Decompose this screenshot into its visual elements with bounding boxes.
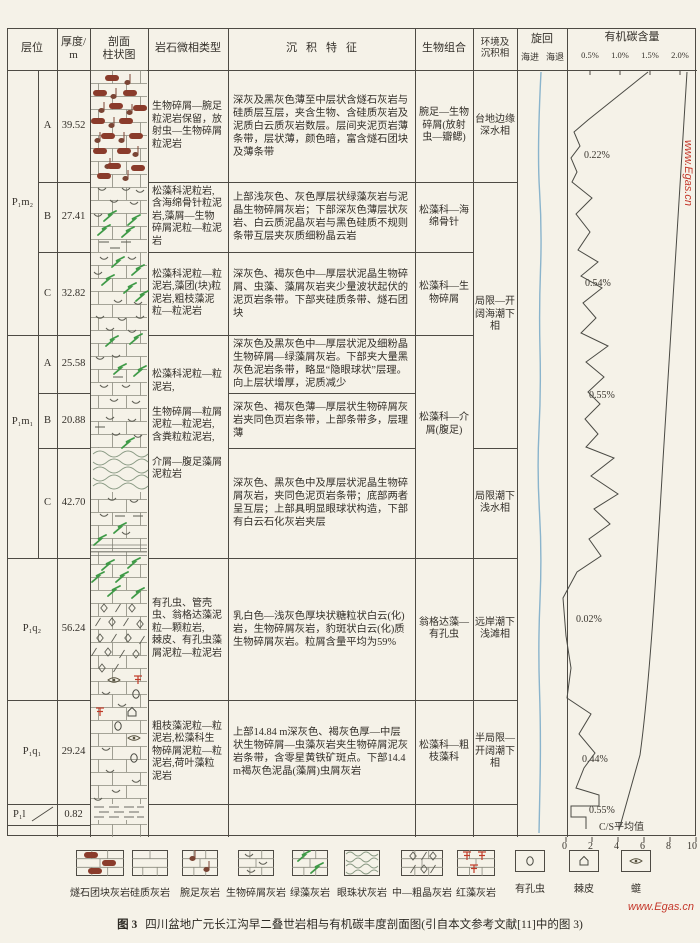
thickness-value: 32.82: [57, 252, 90, 335]
chert-nodule-icon: [88, 868, 102, 874]
microfacies-cell: 松藻科泥粒岩,含海绵骨针粒泥岩,藻屑—生物碎屑泥粒—粒泥岩: [148, 182, 228, 252]
toc-tick-label: 2.0%: [665, 48, 695, 62]
row-line: [148, 804, 517, 805]
member-label: B: [38, 182, 57, 252]
env-cell: 局限潮下浅水相: [473, 448, 517, 558]
chert-nodule-icon: [84, 852, 98, 858]
header-env: 环境及 沉积相: [473, 28, 517, 70]
microfacies-cell: 生物碎屑—腕足粒泥岩保留，放射虫—生物碎屑粒泥岩: [148, 70, 228, 182]
formation-label: P₁m₁: [12, 415, 33, 428]
header-cycle: 旋回: [517, 28, 567, 52]
thickness-value: 20.88: [57, 393, 90, 448]
microfacies-cell: 松藻科泥粒—粒泥岩,藻团(块)粒泥岩,粗枝藻泥粒—粒泥岩: [148, 252, 228, 335]
features-cell: 深灰色、黑灰色中及厚层状泥晶生物碎屑灰岩，夹同色泥页岩条带；底部两者呈互层；上部…: [228, 448, 415, 558]
features-cell: 上部14.84 m深灰色、褐灰色厚—中层状生物碎屑—虫藻灰岩夹生物碎屑泥灰岩条带…: [228, 700, 415, 804]
toc-value: 0.22%: [584, 150, 610, 161]
figure-page: 层位 厚度/ m 剖面 柱状图 岩石微相类型 沉积特征 生物组合 环境及 沉积相…: [0, 0, 700, 943]
member-label: A: [38, 335, 57, 393]
toc-value: 0.55%: [589, 805, 615, 816]
env-cell: 远岸潮下浅滩相: [473, 558, 517, 700]
toc-value: 0.02%: [576, 614, 602, 625]
toc-value: 0.54%: [585, 278, 611, 289]
microfacies-cell: 有孔虫、管壳虫、翁格达藻泥粒—颗粒岩, 棘皮、有孔虫藻屑泥粒—粒泥岩: [148, 558, 228, 700]
header-strata: 层位: [7, 28, 57, 70]
watermark-bottom: www.Egas.cn: [628, 901, 694, 913]
microfacies-cell: 粗枝藻泥粒—粒泥岩,松藻科生物碎屑泥粒—粒泥岩,荷叶藻粒泥岩: [148, 700, 228, 804]
features-cell: 深灰色及黑灰色中—厚层状泥及细粉晶生物碎屑—绿藻屑灰岩。下部夹大量黑灰色泥岩条带…: [228, 335, 415, 393]
thickness-value: 39.52: [57, 70, 90, 182]
bio-cell: 翁格达藻—有孔虫: [415, 558, 473, 700]
thickness-value: 56.24: [57, 558, 90, 700]
divider: [517, 28, 518, 837]
env-cell: 半局限—开阔潮下相: [473, 700, 517, 804]
header-bio: 生物组合: [415, 28, 473, 70]
header-cycle-transgression: 海进: [517, 50, 543, 66]
member-label: B: [38, 393, 57, 448]
bio-cell: 松藻科—海绵骨针: [415, 182, 473, 252]
divider: [90, 28, 91, 837]
features-cell: 深灰及黑灰色薄至中层状含燧石灰岩与硅质层互层，夹含生物、含硅质灰岩及泥质白云质灰…: [228, 70, 415, 182]
formation-label: P₁l: [7, 804, 57, 825]
figure-number: 图 3: [117, 919, 137, 931]
legend-swatch-fusulinid: [621, 850, 651, 872]
env-cell: 台地边缘深水相: [473, 70, 517, 182]
thickness-value: 27.41: [57, 182, 90, 252]
member-label: C: [38, 252, 57, 335]
features-cell: 深灰色、褐灰色中—厚层状泥晶生物碎屑、虫藻、藻屑灰岩夹少量波状起伏的泥页岩条带。…: [228, 252, 415, 335]
member-label: C: [38, 448, 57, 558]
legend-item-fusulinid: 䗴: [591, 850, 681, 895]
header-cycle-regression: 海退: [542, 50, 568, 66]
thickness-value: 42.70: [57, 448, 90, 558]
microfacies-cell: 松藻科泥粒—粒泥岩, 生物碎屑—粒屑泥粒—粒泥岩, 含粪粒粒泥岩, 介屑—腹足藻…: [148, 335, 228, 558]
header-column: 剖面 柱状图: [90, 28, 148, 70]
thickness-value: 0.82: [57, 804, 90, 825]
figure-caption: 图 3四川盆地广元长江沟早二叠世岩相与有机碳丰度剖面图(引自本文参考文献[11]…: [0, 916, 700, 932]
header-thickness: 厚度/ m: [57, 28, 90, 70]
row-line: [7, 825, 90, 826]
figure-title: 四川盆地广元长江沟早二叠世岩相与有机碳丰度剖面图(引自本文参考文献[11]中的图…: [145, 919, 583, 931]
divider: [567, 28, 568, 837]
toc-tick-label: 1.5%: [635, 48, 665, 62]
features-cell: 上部浅灰色、灰色厚层状绿藻灰岩与泥晶生物碎屑灰岩；下部深灰色薄层状灰岩、白云质泥…: [228, 182, 415, 252]
cs-axis-tick: 10: [687, 841, 697, 852]
header-toc: 有机碳含量: [567, 28, 697, 48]
header-microfacies: 岩石微相类型: [148, 28, 228, 70]
formation-label: P₁m₂: [7, 70, 38, 335]
formation-label: P₁q₁: [7, 700, 57, 804]
watermark-vertical: www.Egas.cn: [682, 140, 694, 206]
cs-curve-label: C/S平均值: [599, 818, 644, 833]
features-cell: 乳白色—浅灰色厚块状糖粒状白云(化)岩，生物碎屑灰岩，豹斑状白云(化)质生物碎屑…: [228, 558, 415, 700]
header-features: 沉积特征: [228, 28, 415, 70]
bio-cell: 腕足—生物碎屑(放射虫—瓣鳃): [415, 70, 473, 182]
thickness-value: 25.58: [57, 335, 90, 393]
env-cell: 局限—开阔海潮下相: [473, 182, 517, 448]
member-label: A: [38, 70, 57, 182]
toc-tick-label: 0.5%: [575, 48, 605, 62]
thickness-value: 29.24: [57, 700, 90, 804]
bio-cell: 松藻科—粗枝藻科: [415, 700, 473, 804]
toc-tick-label: 1.0%: [605, 48, 635, 62]
bio-cell: 松藻科—生物碎屑: [415, 252, 473, 335]
legend-label: 䗴: [591, 880, 681, 895]
toc-value: 0.44%: [582, 754, 608, 765]
toc-value: 0.55%: [589, 390, 615, 401]
formation-label: P₁q₂: [7, 558, 57, 700]
bio-cell: 松藻科—介屑(腹足): [418, 412, 470, 437]
features-cell: 深灰色、褐灰色薄—厚层状生物碎屑灰岩夹同色页岩条带，上部条带多，层理薄: [228, 393, 415, 448]
legend-swatch-eyeball-limestone: [344, 850, 380, 876]
